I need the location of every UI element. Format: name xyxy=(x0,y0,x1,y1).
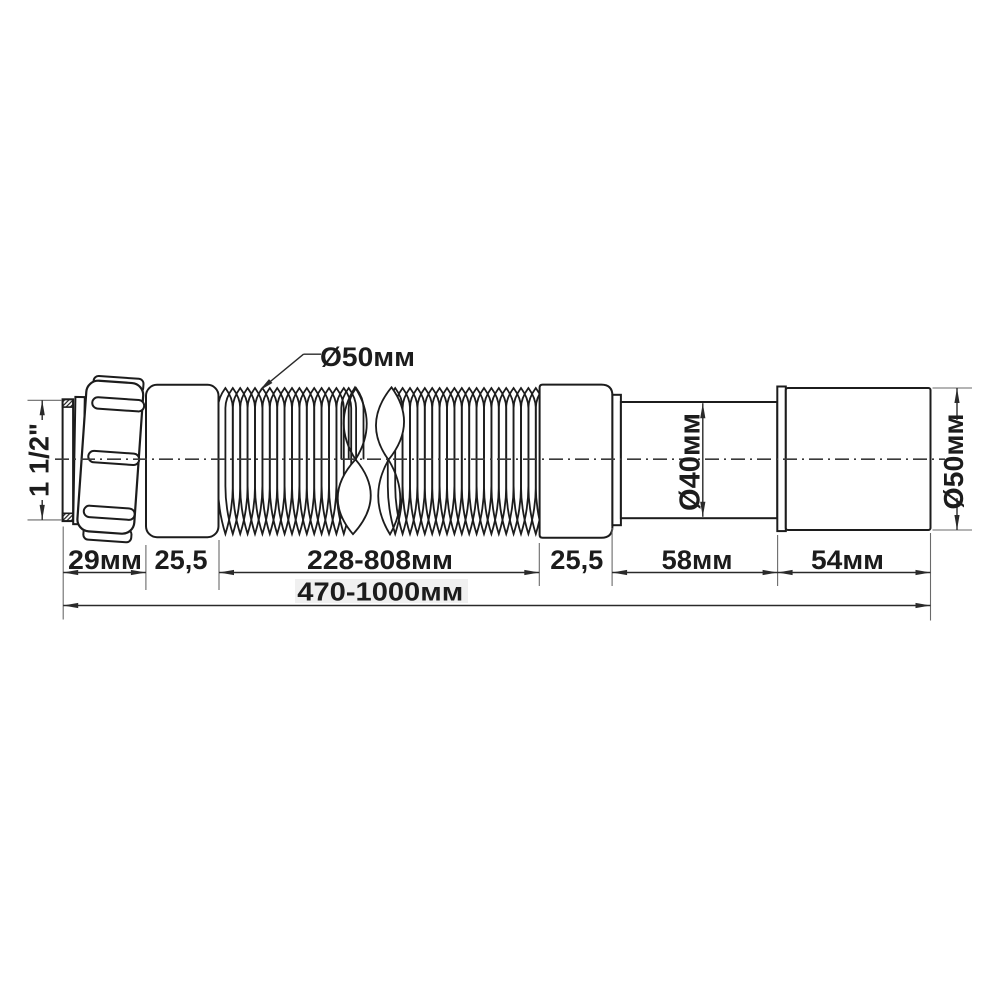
svg-text:54мм: 54мм xyxy=(811,545,884,575)
svg-text:1 1/2": 1 1/2" xyxy=(24,423,55,497)
svg-text:Ø40мм: Ø40мм xyxy=(675,413,707,511)
svg-text:29мм: 29мм xyxy=(68,545,142,575)
svg-text:Ø50мм: Ø50мм xyxy=(320,342,415,372)
svg-text:470-1000мм: 470-1000мм xyxy=(297,577,463,607)
svg-text:25,5: 25,5 xyxy=(550,545,603,575)
svg-text:25,5: 25,5 xyxy=(155,545,208,575)
svg-text:228-808мм: 228-808мм xyxy=(307,545,453,575)
svg-text:Ø50мм: Ø50мм xyxy=(938,414,969,510)
svg-text:58мм: 58мм xyxy=(662,545,733,575)
